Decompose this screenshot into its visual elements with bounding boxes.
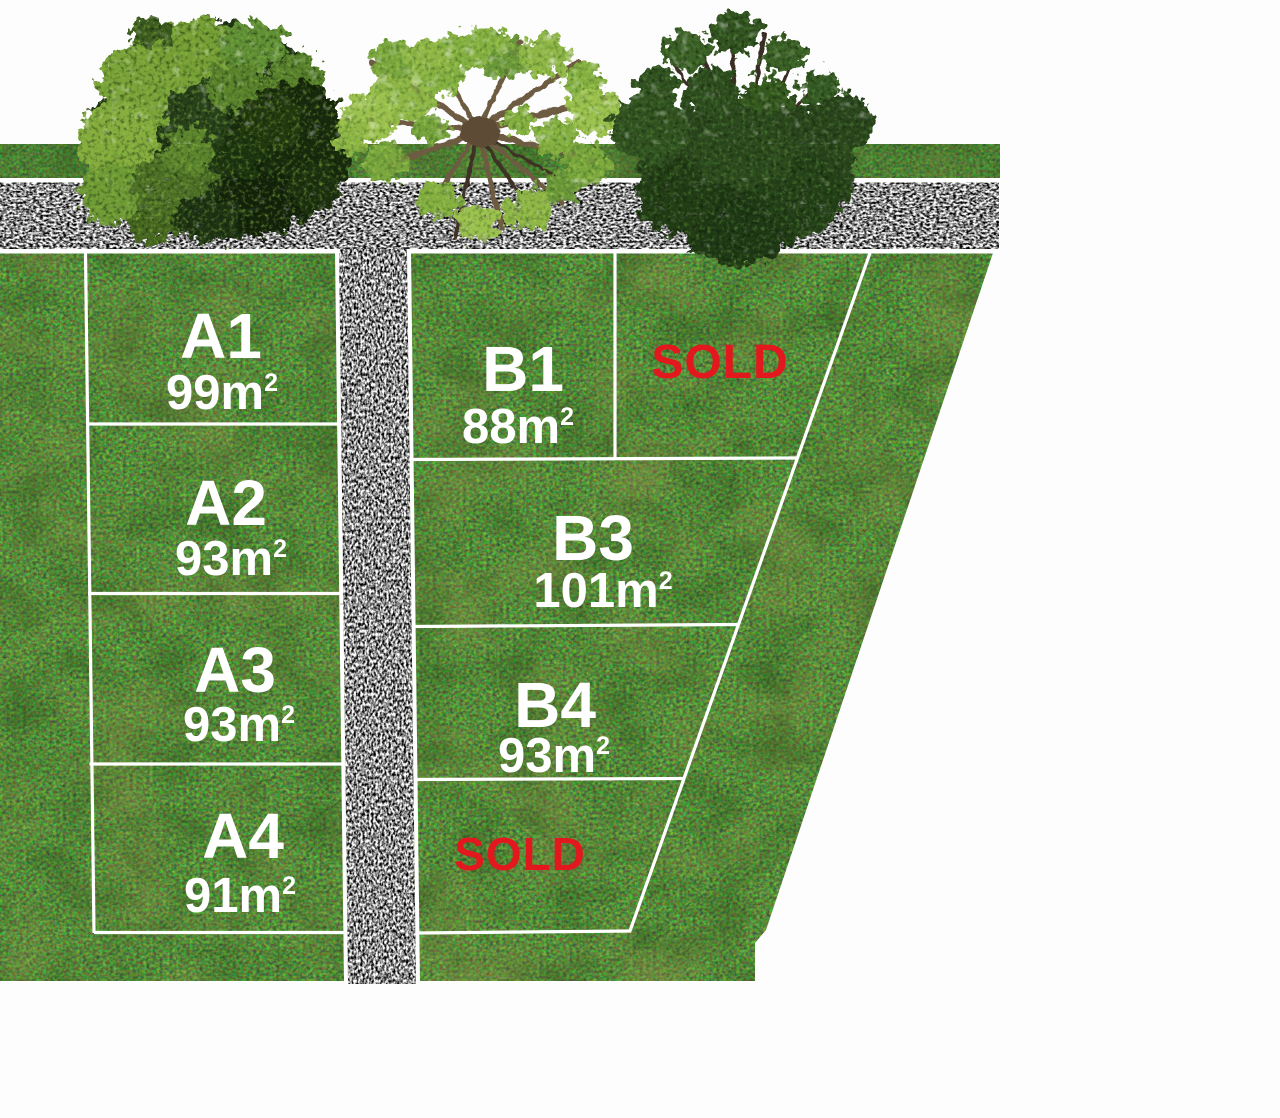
svg-text:91m2: 91m2 <box>184 869 296 923</box>
svg-text:SOLD: SOLD <box>454 828 586 880</box>
svg-text:A3: A3 <box>194 634 276 706</box>
svg-text:A2: A2 <box>185 467 267 539</box>
svg-text:93m2: 93m2 <box>175 532 287 586</box>
svg-text:101m2: 101m2 <box>533 564 672 618</box>
svg-text:99m2: 99m2 <box>166 366 278 420</box>
svg-text:88m2: 88m2 <box>462 400 574 454</box>
svg-text:A4: A4 <box>202 800 284 872</box>
svg-text:93m2: 93m2 <box>498 729 610 783</box>
svg-text:B1: B1 <box>482 333 564 405</box>
svg-text:SOLD: SOLD <box>651 336 788 389</box>
svg-text:A1: A1 <box>180 300 262 372</box>
svg-text:93m2: 93m2 <box>183 698 295 752</box>
